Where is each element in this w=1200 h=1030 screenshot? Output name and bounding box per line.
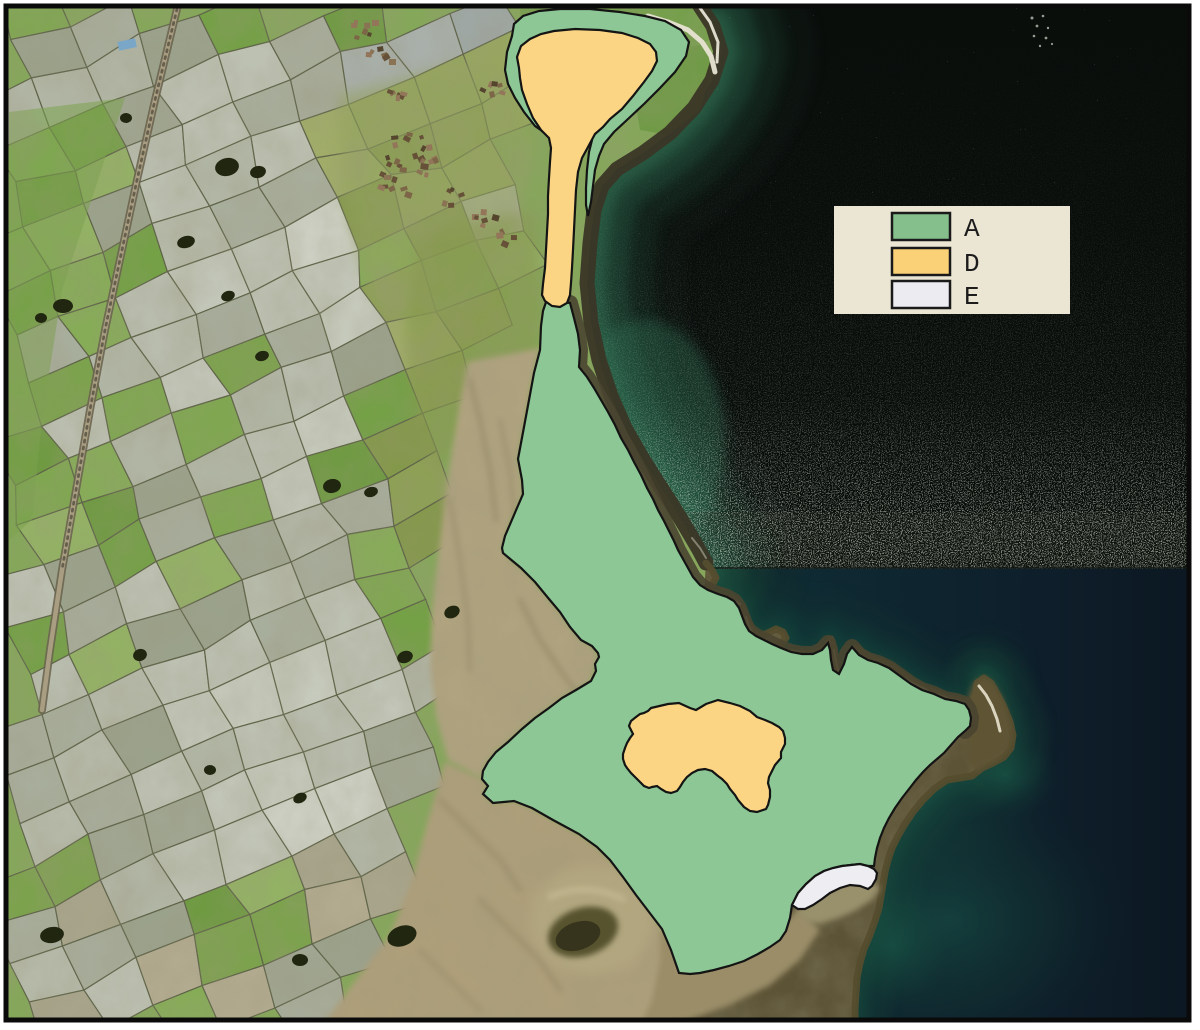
svg-text:E: E bbox=[964, 282, 980, 312]
svg-text:D: D bbox=[964, 249, 980, 279]
svg-text:A: A bbox=[964, 214, 980, 244]
